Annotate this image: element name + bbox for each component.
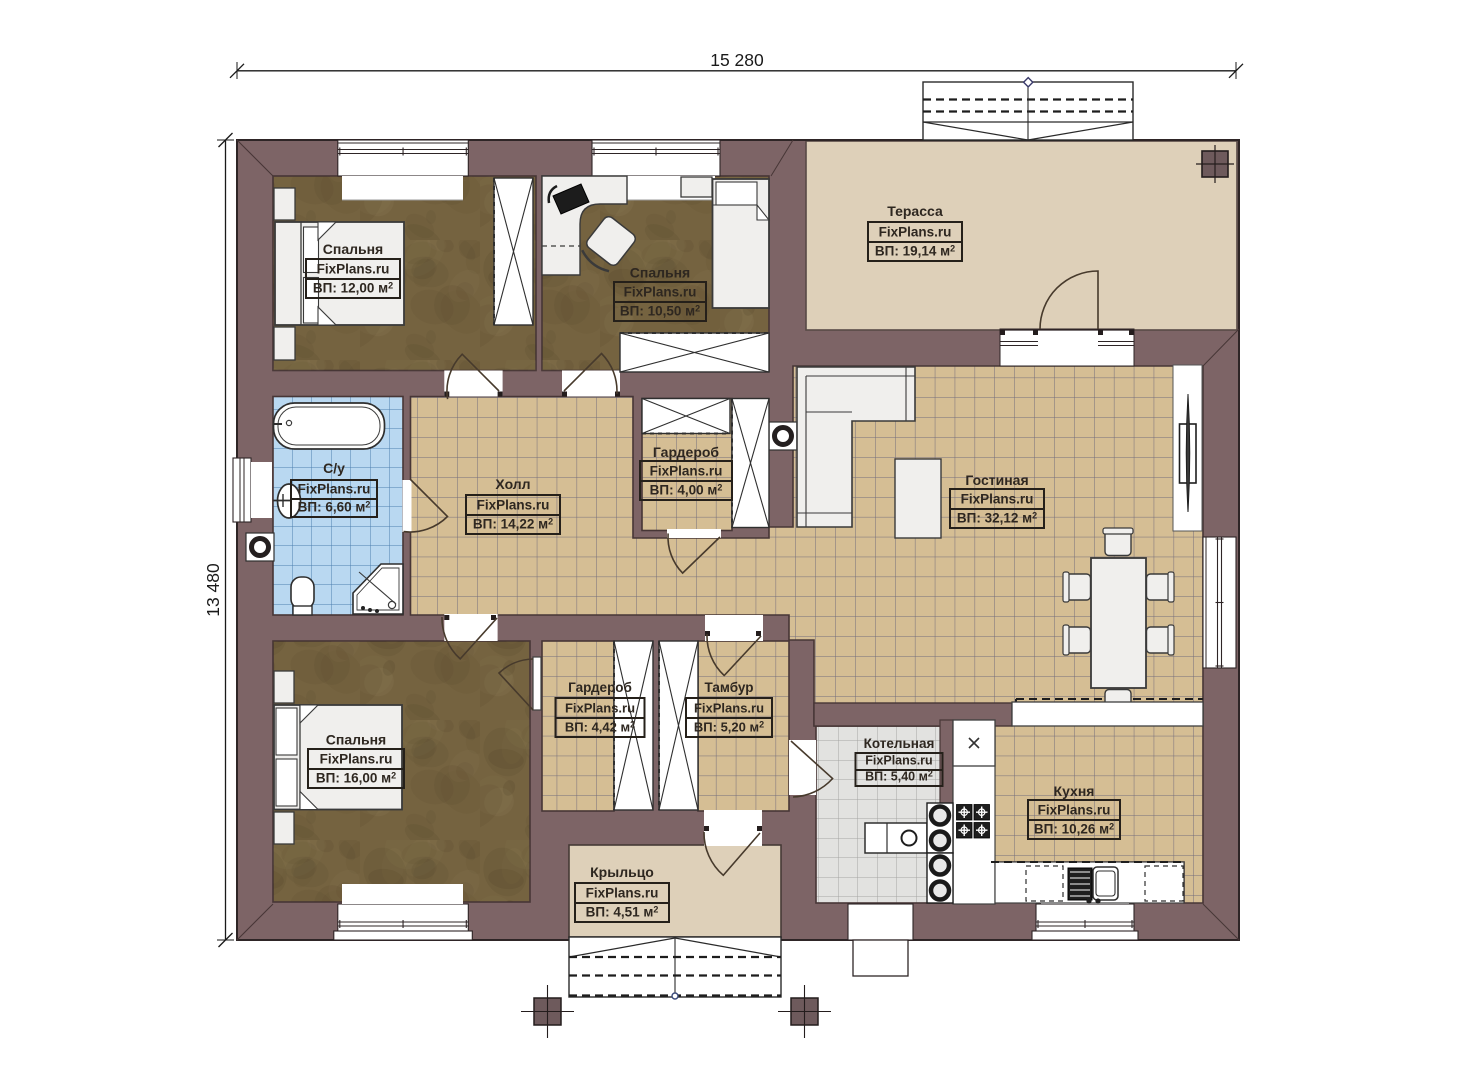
- svg-text:ВП: 5,20 м2: ВП: 5,20 м2: [694, 720, 764, 735]
- svg-text:Кухня: Кухня: [1054, 783, 1095, 799]
- svg-text:ВП: 19,14 м2: ВП: 19,14 м2: [875, 244, 955, 259]
- svg-text:Гардероб: Гардероб: [653, 444, 720, 460]
- svg-text:FixPlans.ru: FixPlans.ru: [320, 752, 393, 767]
- svg-text:FixPlans.ru: FixPlans.ru: [865, 754, 932, 768]
- svg-text:ВП: 6,60 м2: ВП: 6,60 м2: [298, 500, 371, 515]
- svg-text:FixPlans.ru: FixPlans.ru: [624, 285, 697, 300]
- svg-text:ВП: 5,40 м2: ВП: 5,40 м2: [865, 769, 933, 784]
- svg-text:FixPlans.ru: FixPlans.ru: [694, 701, 764, 716]
- svg-text:FixPlans.ru: FixPlans.ru: [565, 701, 635, 716]
- svg-text:ВП: 4,00 м2: ВП: 4,00 м2: [650, 483, 723, 498]
- svg-text:ВП: 10,26 м2: ВП: 10,26 м2: [1034, 822, 1114, 837]
- svg-text:FixPlans.ru: FixPlans.ru: [961, 492, 1034, 507]
- svg-text:Тамбур: Тамбур: [705, 680, 754, 695]
- svg-text:13 480: 13 480: [203, 563, 223, 617]
- svg-text:Спальня: Спальня: [323, 241, 383, 257]
- svg-text:FixPlans.ru: FixPlans.ru: [477, 498, 550, 513]
- svg-text:FixPlans.ru: FixPlans.ru: [586, 886, 659, 901]
- svg-text:С/у: С/у: [323, 460, 345, 476]
- svg-text:Гардероб: Гардероб: [568, 680, 632, 695]
- svg-text:Спальня: Спальня: [630, 265, 690, 281]
- svg-text:FixPlans.ru: FixPlans.ru: [879, 225, 952, 240]
- svg-text:Спальня: Спальня: [326, 732, 386, 748]
- svg-text:FixPlans.ru: FixPlans.ru: [1038, 803, 1111, 818]
- svg-text:FixPlans.ru: FixPlans.ru: [317, 262, 390, 277]
- svg-text:FixPlans.ru: FixPlans.ru: [650, 464, 723, 479]
- svg-text:ВП: 10,50 м2: ВП: 10,50 м2: [620, 304, 700, 319]
- svg-text:Холл: Холл: [495, 476, 530, 492]
- svg-text:ВП: 4,51 м2: ВП: 4,51 м2: [586, 905, 659, 920]
- svg-text:Котельная: Котельная: [864, 736, 935, 751]
- svg-text:ВП: 16,00 м2: ВП: 16,00 м2: [316, 771, 396, 786]
- svg-text:Терасса: Терасса: [887, 203, 943, 219]
- svg-text:ВП: 12,00 м2: ВП: 12,00 м2: [313, 281, 393, 296]
- svg-text:Гостиная: Гостиная: [965, 472, 1028, 488]
- svg-text:Крыльцо: Крыльцо: [590, 864, 654, 880]
- svg-text:15 280: 15 280: [710, 50, 764, 70]
- svg-text:ВП: 4,42 м2: ВП: 4,42 м2: [565, 720, 635, 735]
- svg-text:ВП: 32,12 м2: ВП: 32,12 м2: [957, 511, 1037, 526]
- svg-text:ВП: 14,22 м2: ВП: 14,22 м2: [473, 517, 553, 532]
- svg-text:FixPlans.ru: FixPlans.ru: [298, 482, 371, 497]
